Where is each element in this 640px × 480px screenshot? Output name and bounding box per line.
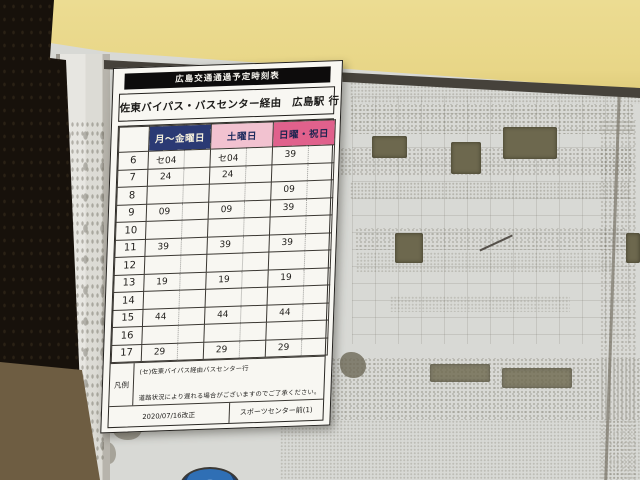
minute-cell — [301, 337, 328, 355]
minute-cell — [239, 340, 266, 358]
minute-cell — [177, 342, 204, 360]
hour-cell: 7 — [117, 169, 148, 188]
minute-cell — [242, 252, 269, 270]
minute-cell: 39 — [145, 238, 182, 257]
hour-cell: 10 — [115, 221, 146, 240]
tape-residue — [395, 233, 423, 263]
poster-title: 広島交通通過予定時刻表 — [124, 66, 331, 89]
minute-cell — [240, 305, 267, 323]
hour-cell: 6 — [118, 151, 149, 170]
revision-date: 2020/07/16改正 — [108, 403, 230, 427]
minute-cell — [178, 324, 205, 342]
minute-cell — [206, 253, 243, 272]
minute-cell — [178, 307, 205, 325]
hour-cell: 9 — [116, 204, 147, 223]
hour-cell: 8 — [117, 186, 148, 205]
minute-cell — [181, 219, 208, 237]
minute-cell — [182, 202, 209, 220]
minute-cell — [303, 285, 330, 303]
minute-cell — [268, 251, 305, 270]
route-heading: 佐東バイパス・バスセンター経由 広島駅 行 — [118, 86, 335, 122]
minute-cell — [244, 217, 271, 235]
hour-cell: 14 — [113, 291, 144, 310]
stain-band — [350, 182, 630, 200]
tape-residue — [372, 136, 407, 158]
timetable-poster: 広島交通通過予定時刻表 佐東バイパス・バスセンター経由 広島駅 行 月～金曜日 … — [100, 60, 343, 433]
minute-cell — [304, 267, 331, 285]
minute-cell — [183, 184, 210, 202]
timetable-table: 月～金曜日 土曜日 日曜・祝日 6セ04セ0439724248099090939… — [111, 119, 336, 363]
legend-label: 凡例 — [109, 363, 135, 406]
minute-cell: 29 — [141, 343, 178, 362]
minute-cell — [306, 215, 333, 233]
minute-cell — [243, 235, 270, 253]
minute-cell — [147, 185, 184, 204]
minute-cell — [240, 322, 267, 340]
minute-cell — [266, 321, 303, 340]
saturday-column-header: 土曜日 — [211, 122, 274, 149]
tape-residue — [626, 233, 640, 263]
hour-cell: 13 — [114, 274, 145, 293]
minute-cell: 09 — [146, 203, 183, 222]
stain-blob — [340, 352, 366, 378]
minute-cell: 09 — [208, 200, 245, 219]
minute-cell — [302, 320, 329, 338]
minute-cell — [267, 286, 304, 305]
minute-cell — [304, 250, 331, 268]
minute-cell — [145, 220, 182, 239]
minute-cell: セ04 — [210, 148, 247, 167]
minute-cell: セ04 — [148, 150, 185, 169]
minute-cell: 09 — [271, 181, 308, 200]
minute-cell — [204, 323, 241, 342]
hour-cell: 16 — [112, 326, 143, 345]
minute-cell: 19 — [144, 273, 181, 292]
minute-cell — [271, 163, 308, 182]
stop-name: スポーツセンター前(1) — [229, 400, 323, 423]
tape-residue — [503, 127, 557, 159]
minute-cell — [142, 325, 179, 344]
minute-cell — [244, 199, 271, 217]
minute-cell — [308, 145, 335, 163]
minute-cell — [184, 149, 211, 167]
minute-cell: 24 — [209, 165, 246, 184]
hour-cell: 11 — [115, 239, 146, 258]
minute-cell: 24 — [147, 168, 184, 187]
minute-cell — [180, 254, 207, 272]
minute-cell: 39 — [269, 233, 306, 252]
timetable-block: 月～金曜日 土曜日 日曜・祝日 6セ04セ0439724248099090939… — [107, 118, 334, 428]
minute-cell: 29 — [203, 341, 240, 360]
stain-band — [280, 420, 640, 480]
minute-cell — [242, 270, 269, 288]
tape-residue — [451, 142, 481, 174]
hour-cell: 15 — [112, 309, 143, 328]
minute-cell: 39 — [270, 198, 307, 217]
blue-sticker — [180, 467, 240, 480]
hour-cell: 17 — [111, 344, 142, 363]
minute-cell: 39 — [207, 235, 244, 254]
minute-cell: 29 — [265, 338, 302, 357]
minute-cell: 39 — [272, 146, 309, 165]
stain-band — [350, 104, 635, 134]
minute-cell — [144, 255, 181, 274]
minute-cell: 19 — [268, 268, 305, 287]
minute-cell — [245, 164, 272, 182]
minute-cell — [305, 232, 332, 250]
minute-cell: 19 — [206, 270, 243, 289]
hour-cell: 12 — [114, 256, 145, 275]
minute-cell — [181, 237, 208, 255]
minute-cell: 44 — [142, 308, 179, 327]
stain-band — [390, 296, 570, 312]
minute-cell — [306, 197, 333, 215]
minute-cell — [208, 218, 245, 237]
minute-cell — [307, 180, 334, 198]
minute-cell — [270, 216, 307, 235]
minute-cell: 44 — [266, 303, 303, 322]
minute-cell — [307, 162, 334, 180]
photo-scene: 広島交通通過予定時刻表 佐東バイパス・バスセンター経由 広島駅 行 月～金曜日 … — [0, 0, 640, 480]
legend-notes: (セ)佐東バイパス経由バスセンター行 道路状況により遅れる場合がございますのでご… — [133, 357, 324, 406]
weekday-column-header: 月～金曜日 — [149, 124, 212, 151]
minute-cell — [183, 167, 210, 185]
legend-note-1: (セ)佐東バイパス経由バスセンター行 — [139, 361, 321, 376]
hour-column-header — [119, 126, 150, 152]
sunday-column-header: 日曜・祝日 — [273, 120, 336, 147]
minute-cell — [179, 289, 206, 307]
minute-cell — [180, 272, 207, 290]
tape-residue — [430, 364, 490, 382]
minute-cell — [246, 147, 273, 165]
minute-cell — [143, 290, 180, 309]
minute-cell — [209, 183, 246, 202]
minute-cell — [302, 302, 329, 320]
minute-cell — [245, 182, 272, 200]
legend-row: 凡例 (セ)佐東バイパス経由バスセンター行 道路状況により遅れる場合がございます… — [109, 356, 325, 407]
tape-residue — [502, 368, 572, 388]
minute-cell — [241, 287, 268, 305]
minute-cell: 44 — [204, 306, 241, 325]
minute-cell — [205, 288, 242, 307]
